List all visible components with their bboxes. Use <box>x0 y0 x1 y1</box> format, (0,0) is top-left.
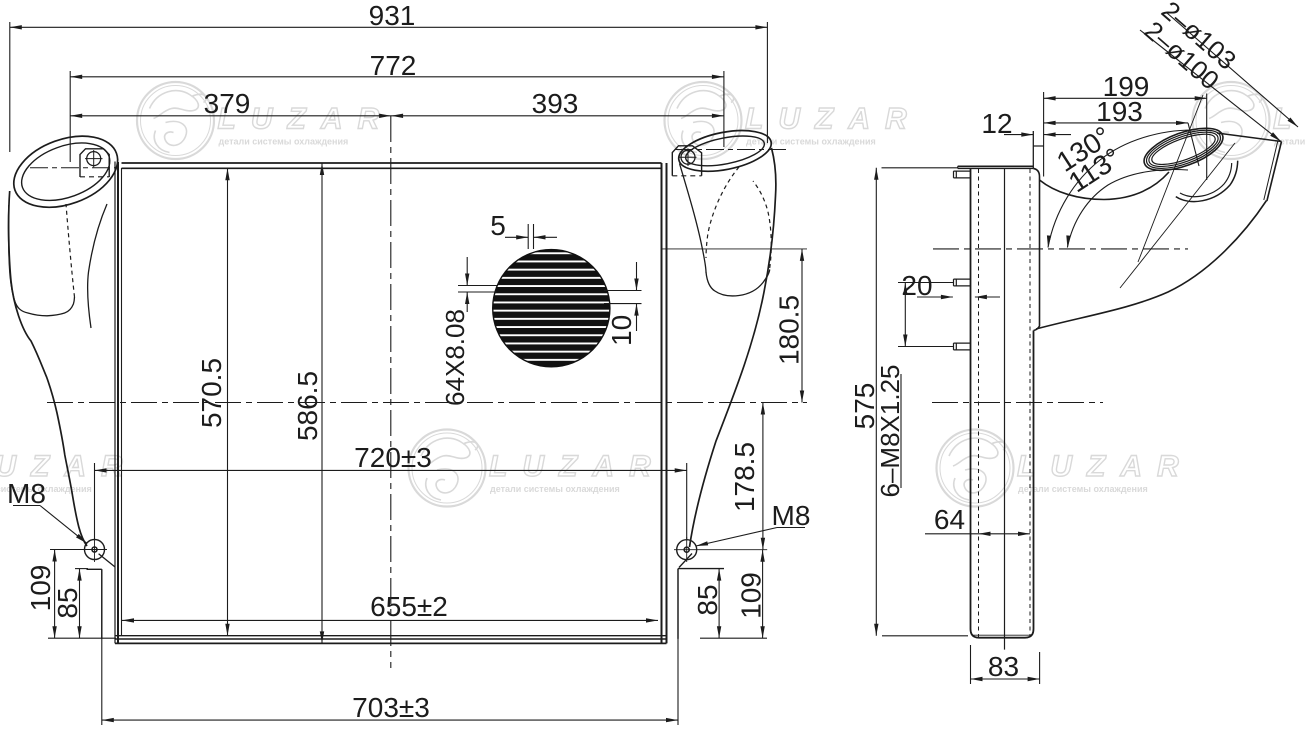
svg-text:586.5: 586.5 <box>292 371 323 441</box>
svg-text:64: 64 <box>934 504 965 535</box>
svg-text:детали системы охлаждения: детали системы охлаждения <box>746 137 876 147</box>
svg-text:20: 20 <box>901 270 932 301</box>
svg-text:379: 379 <box>204 88 251 119</box>
svg-text:178.5: 178.5 <box>729 442 760 512</box>
svg-text:85: 85 <box>692 584 723 615</box>
svg-text:193: 193 <box>1096 96 1143 127</box>
svg-text:детали системы охлаждения: детали системы охлаждения <box>219 137 349 147</box>
svg-text:83: 83 <box>988 651 1019 682</box>
svg-text:570.5: 570.5 <box>196 358 227 428</box>
svg-text:LUZAR: LUZAR <box>1017 450 1194 483</box>
svg-text:85: 85 <box>52 587 83 618</box>
svg-text:655±2: 655±2 <box>370 591 448 622</box>
svg-text:575: 575 <box>849 383 880 430</box>
svg-text:12: 12 <box>981 108 1012 139</box>
svg-text:109: 109 <box>736 572 767 619</box>
svg-text:LUZAR: LUZAR <box>489 450 666 483</box>
svg-text:M8: M8 <box>772 500 811 531</box>
svg-text:LUZAR: LUZAR <box>745 103 922 136</box>
svg-text:детали системы охлаждения: детали системы охлаждения <box>1018 484 1148 494</box>
svg-text:772: 772 <box>370 50 417 81</box>
svg-text:M8: M8 <box>7 478 46 509</box>
svg-text:931: 931 <box>369 0 416 31</box>
svg-text:64X8.08: 64X8.08 <box>440 309 470 406</box>
svg-text:703±3: 703±3 <box>352 692 430 723</box>
svg-text:393: 393 <box>532 88 579 119</box>
svg-text:720±3: 720±3 <box>354 442 432 473</box>
svg-text:180.5: 180.5 <box>774 295 805 365</box>
svg-text:10: 10 <box>606 315 637 346</box>
svg-text:детали системы охлаждения: детали системы охлаждения <box>490 484 620 494</box>
svg-text:5: 5 <box>490 210 506 241</box>
